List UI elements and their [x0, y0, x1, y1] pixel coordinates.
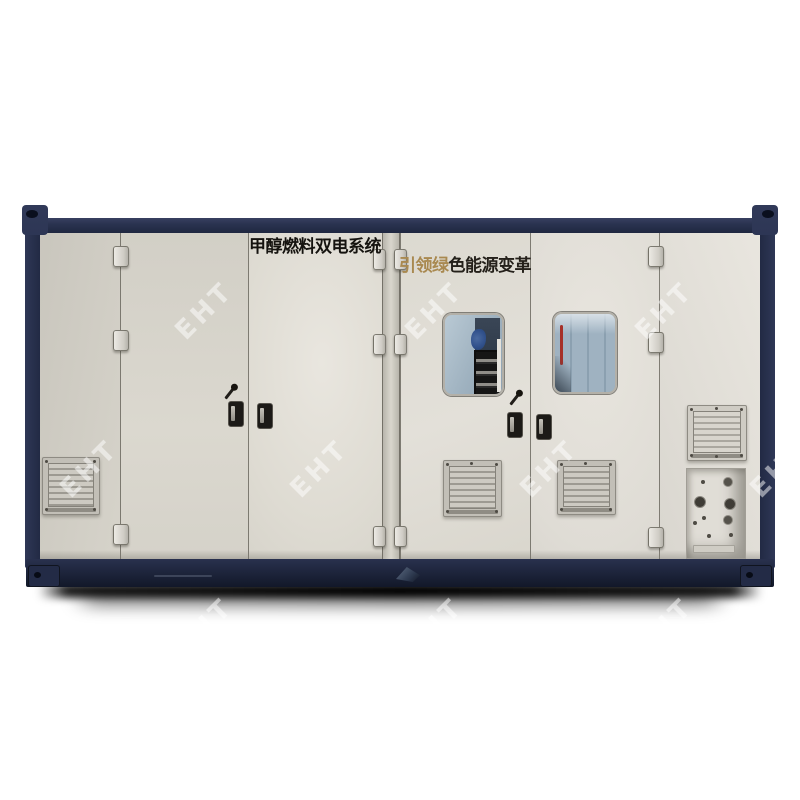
watermark-text: EHT — [0, 592, 10, 662]
louver-vent-right-panel — [687, 405, 747, 461]
watermark-text: EHT — [630, 0, 700, 30]
hinge-icon — [113, 246, 129, 267]
door-lock-icon — [257, 403, 273, 429]
gland-hole — [724, 498, 736, 510]
vent-base — [561, 508, 612, 512]
vent-base — [46, 508, 96, 512]
door-lock-icon — [228, 401, 244, 427]
hinge-icon — [648, 246, 664, 267]
corner-hole — [34, 572, 41, 578]
product-photo-stage: 甲醇燃料双电系统 引领绿色能源变革 — [0, 0, 800, 800]
hinge-icon — [648, 527, 664, 548]
watermark-text: EHT — [0, 0, 10, 30]
watermark-text: EHT — [170, 0, 240, 30]
watermark-text: EHT — [745, 750, 800, 800]
gland-hole — [701, 480, 705, 484]
louver-vent-left-panel — [42, 457, 100, 515]
corner-hole — [762, 210, 774, 218]
hinge-icon — [648, 332, 664, 353]
banner-text-left: 甲醇燃料双电系统 — [249, 232, 381, 257]
vent-louvers — [563, 466, 610, 507]
glass-reflection — [555, 314, 615, 334]
louver-vent-door-3 — [443, 460, 502, 517]
gland-hole — [702, 516, 706, 520]
lock-handle — [260, 408, 264, 423]
corner-hole — [746, 572, 753, 578]
banner-right-highlight: 引领绿 — [399, 256, 449, 276]
corner-hole — [26, 210, 38, 218]
rail-reflection — [154, 575, 212, 577]
corner-casting-bottom-left — [28, 565, 60, 587]
container-left-rail — [25, 226, 40, 568]
center-mullion — [382, 230, 400, 562]
watermark-text: EHT — [0, 276, 10, 346]
corner-casting-bottom-right — [740, 565, 772, 587]
watermark-text: EHT — [515, 750, 585, 800]
gland-hole — [694, 496, 706, 508]
watermark-text: EHT — [745, 118, 800, 188]
watermark-text: EHT — [285, 118, 355, 188]
vent-base — [447, 510, 498, 514]
watermark-text: EHT — [515, 118, 585, 188]
vent-louvers — [449, 466, 496, 509]
hinge-icon — [113, 524, 129, 545]
cable-gland-panel — [686, 468, 746, 559]
banner-right-rest: 色能源变革 — [449, 256, 532, 276]
vent-louvers — [48, 463, 94, 507]
corner-casting-top-right — [752, 205, 778, 235]
gland-hole — [723, 515, 733, 525]
container-bottom-rail — [26, 559, 774, 587]
interior-shadow — [555, 356, 571, 392]
container-right-rail — [760, 226, 775, 568]
hinge-icon — [373, 526, 386, 547]
ground-shadow-soft — [70, 590, 730, 606]
hinge-icon — [394, 526, 407, 547]
hinge-icon — [113, 330, 129, 351]
hinge-icon — [373, 334, 386, 355]
lock-handle — [510, 417, 514, 432]
watermark-text: EHT — [55, 118, 125, 188]
bottom-center-bracket — [396, 567, 420, 582]
door-panel-2 — [248, 230, 382, 562]
door-lock-icon — [507, 412, 523, 438]
lock-handle — [539, 419, 543, 434]
interior-frame-strip — [497, 339, 500, 393]
inspection-window-right — [553, 312, 617, 394]
inspection-window-left — [443, 313, 504, 396]
corner-casting-top-left — [22, 205, 48, 235]
gland-hole — [729, 533, 733, 537]
louver-vent-door-4 — [557, 460, 616, 515]
gland-bottom-slot — [693, 545, 735, 553]
hinge-icon — [394, 334, 407, 355]
door-lock-icon — [536, 414, 552, 440]
gland-hole — [693, 521, 697, 525]
container-top-rail — [30, 218, 770, 233]
lock-handle — [231, 406, 235, 421]
watermark-text: EHT — [285, 750, 355, 800]
banner-text-right: 引领绿色能源变革 — [399, 251, 531, 276]
vent-base — [691, 454, 743, 458]
gland-hole — [723, 477, 733, 487]
watermark-text: EHT — [55, 750, 125, 800]
container-front-face — [38, 230, 762, 562]
vent-louvers — [693, 411, 741, 453]
watermark-text: EHT — [400, 0, 470, 30]
gland-hole — [707, 534, 711, 538]
